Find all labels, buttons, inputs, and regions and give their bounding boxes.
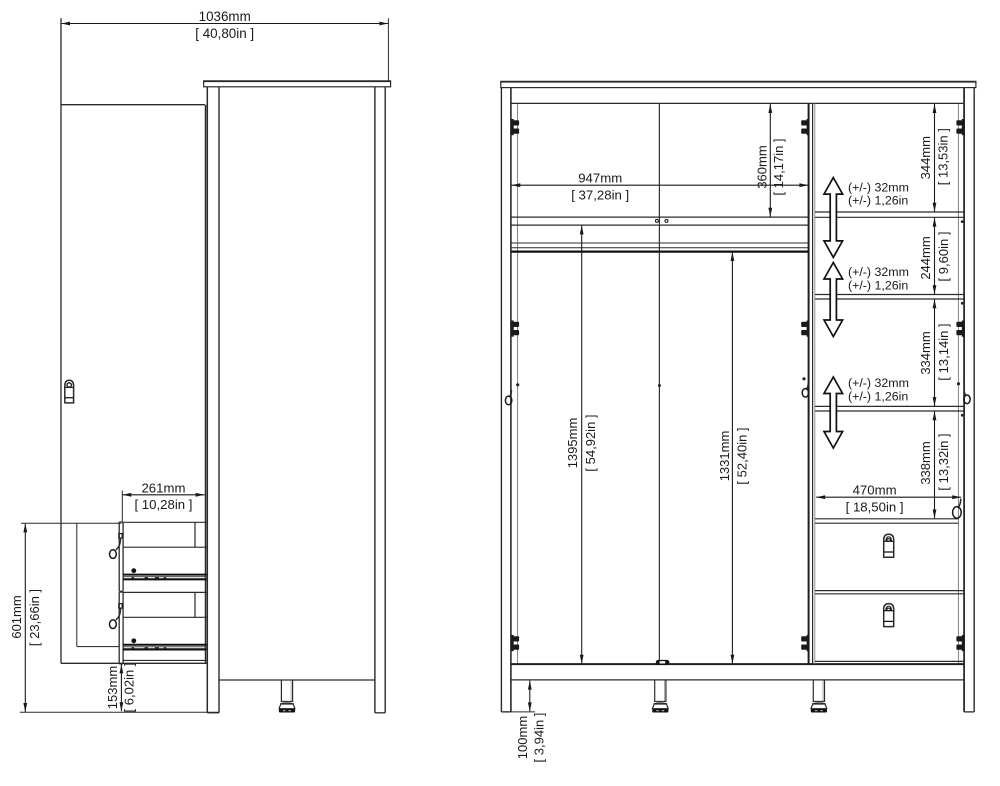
svg-text:1395mm: 1395mm [565, 418, 580, 469]
svg-text:[ 54,92in ]: [ 54,92in ] [583, 414, 598, 471]
svg-text:[ 3,94in ]: [ 3,94in ] [531, 713, 546, 763]
svg-text:244mm: 244mm [918, 236, 933, 279]
svg-text:100mm: 100mm [515, 716, 530, 759]
svg-text:[ 40,80in ]: [ 40,80in ] [195, 26, 254, 41]
svg-text:(+/-) 32mm: (+/-) 32mm [848, 180, 909, 194]
svg-text:[ 18,50in ]: [ 18,50in ] [846, 500, 904, 515]
svg-text:947mm: 947mm [578, 171, 622, 186]
svg-text:1331mm: 1331mm [717, 431, 732, 482]
svg-text:(+/-) 32mm: (+/-) 32mm [848, 265, 909, 279]
svg-text:[ 13,32in ]: [ 13,32in ] [936, 433, 951, 490]
svg-text:(+/-) 1,26in: (+/-) 1,26in [848, 390, 908, 404]
svg-text:338mm: 338mm [918, 441, 933, 484]
svg-text:[ 6,02in ]: [ 6,02in ] [122, 663, 137, 713]
svg-text:[ 37,28in ]: [ 37,28in ] [571, 188, 629, 203]
svg-text:601mm: 601mm [9, 595, 24, 638]
svg-text:344mm: 344mm [918, 136, 933, 179]
svg-text:[ 13,14in ]: [ 13,14in ] [936, 323, 951, 380]
svg-text:(+/-) 32mm: (+/-) 32mm [848, 376, 909, 390]
svg-text:334mm: 334mm [918, 331, 933, 374]
svg-text:261mm: 261mm [141, 480, 185, 495]
svg-text:[ 9,60in ]: [ 9,60in ] [936, 232, 951, 282]
svg-text:[ 23,66in ]: [ 23,66in ] [27, 589, 42, 646]
svg-text:[ 52,40in ]: [ 52,40in ] [735, 427, 750, 484]
svg-text:360mm: 360mm [754, 145, 769, 188]
svg-text:1036mm: 1036mm [199, 9, 251, 24]
svg-text:[ 13,53in ]: [ 13,53in ] [936, 128, 951, 185]
svg-text:153mm: 153mm [105, 666, 120, 709]
svg-text:470mm: 470mm [853, 483, 897, 498]
svg-text:[ 14,17in ]: [ 14,17in ] [771, 138, 786, 195]
svg-text:(+/-) 1,26in: (+/-) 1,26in [848, 279, 908, 293]
svg-text:(+/-) 1,26in: (+/-) 1,26in [848, 194, 908, 208]
svg-text:[ 10,28in ]: [ 10,28in ] [134, 497, 192, 512]
